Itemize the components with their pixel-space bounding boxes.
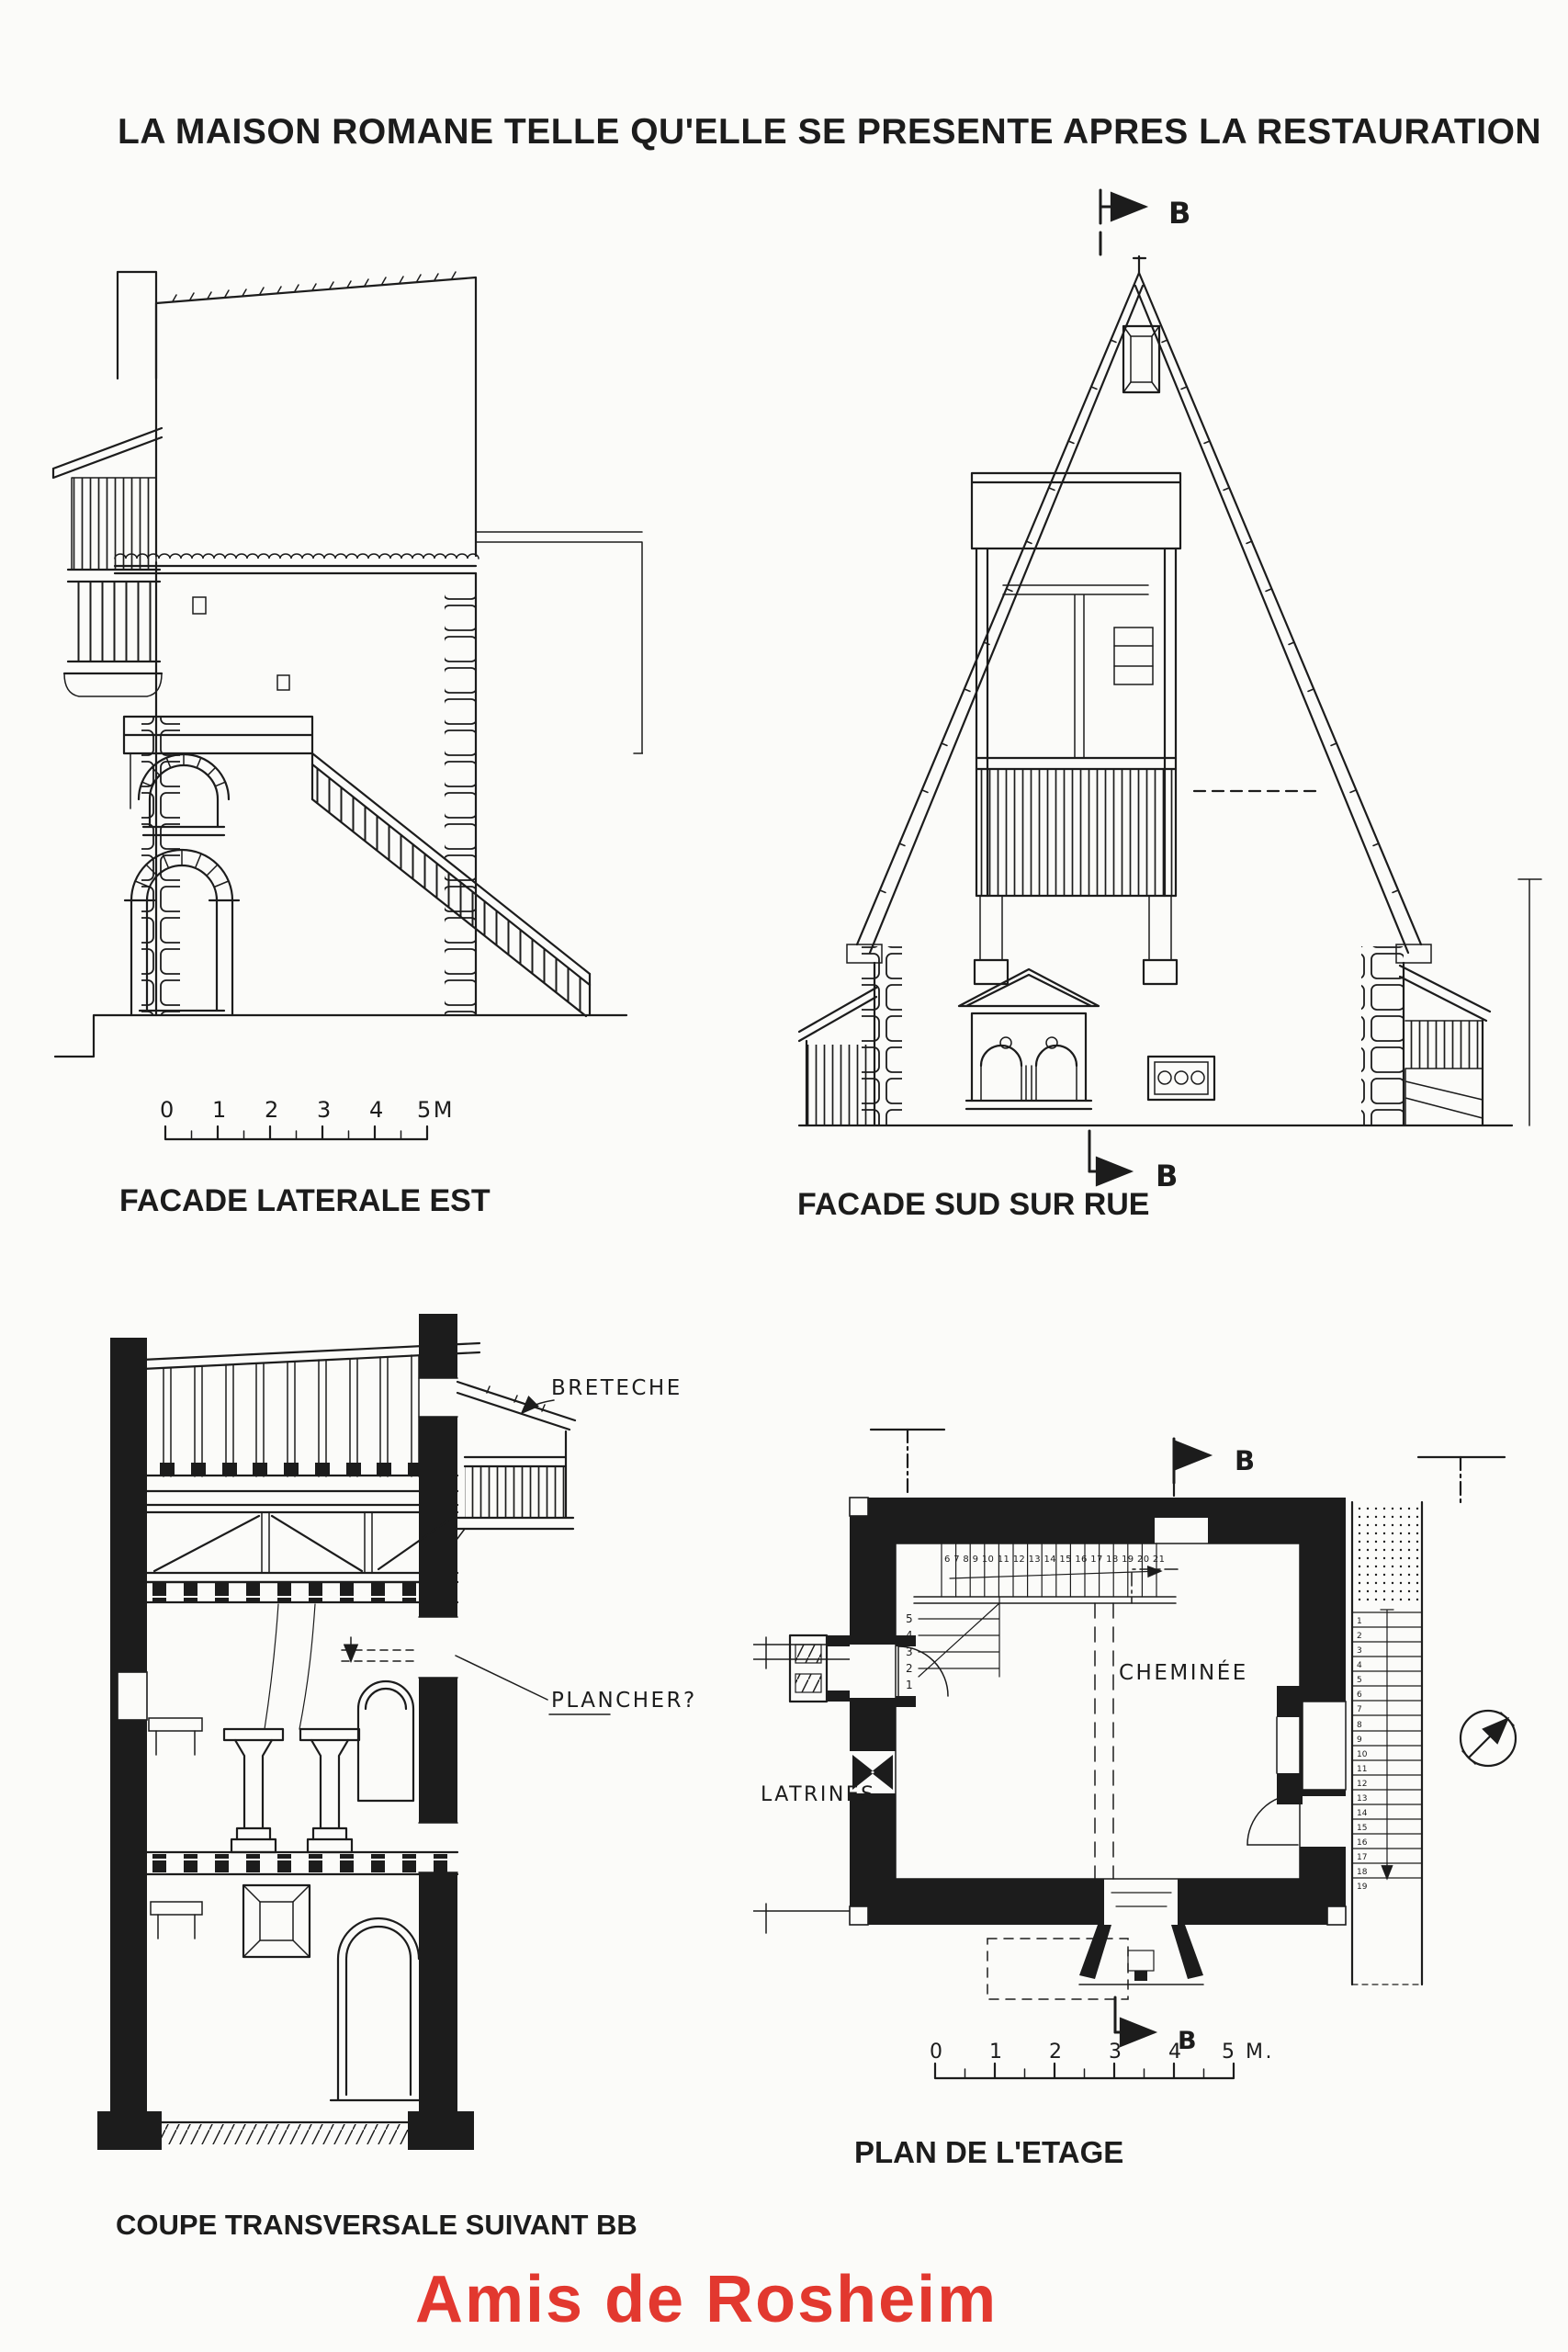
- stair-number: 10: [1357, 1750, 1368, 1759]
- stone-quoins-right: [445, 581, 476, 1015]
- stair-number: 17: [1357, 1853, 1367, 1862]
- attic-studs: [147, 1355, 457, 1491]
- cheminee-label: CHEMINÉE: [1119, 1659, 1248, 1685]
- scale-tick: 4: [1168, 2041, 1184, 2064]
- scale-bar-plan: 0 1 2 3 4 5 M.: [930, 2041, 1274, 2078]
- arched-niche-right: [358, 1681, 413, 1801]
- plancher-annotation: PLANCHER?: [342, 1637, 697, 1714]
- scale-tick: 5 M.: [1222, 2041, 1274, 2064]
- stair-number: 5: [1357, 1676, 1362, 1685]
- tile-frieze: [115, 554, 479, 573]
- stair-number: 8: [1357, 1721, 1362, 1730]
- small-window-mid: [277, 675, 289, 690]
- north-indicator: [1461, 1711, 1516, 1766]
- stair-number: 18: [1357, 1868, 1368, 1877]
- stair-number: 13: [1357, 1794, 1367, 1804]
- gable-vent: [1123, 326, 1159, 392]
- stair-number: 1: [1357, 1617, 1362, 1626]
- section-label-b-bottom: B: [1156, 1159, 1178, 1193]
- stair-number: 14: [1357, 1809, 1368, 1818]
- chimney: [118, 272, 156, 379]
- triple-light-opening: [1148, 1057, 1214, 1100]
- stair-number: 5: [906, 1612, 913, 1625]
- facade-sud-drawing: B: [762, 170, 1552, 1199]
- scale-bar-est: 0 1 2 3 4 5M: [160, 1097, 455, 1139]
- stair-number: 4: [1357, 1661, 1362, 1670]
- coupe-drawing: PLANCHER?: [55, 1314, 735, 2196]
- scale-tick: 3: [1109, 2041, 1124, 2064]
- breteche-label: BRETECHE: [551, 1376, 682, 1400]
- caption-facade-sud: FACADE SUD SUR RUE: [797, 1187, 1149, 1223]
- breteche-oriel: [53, 428, 162, 696]
- section-marker-bottom: B: [1089, 1131, 1178, 1193]
- plan-drawing: 6 7 8 9 10 11 12 13 14 15 16 17 18 19 20…: [753, 1415, 1543, 2113]
- side-gallery: [1400, 966, 1490, 1125]
- exterior-stair: 1 2 3 4 5 6 7 8 9 10 11 12 13 14 15 16 1…: [1352, 1502, 1422, 1984]
- scale-tick: 3: [317, 1097, 333, 1123]
- caption-facade-est: FACADE LATERALE EST: [119, 1183, 491, 1219]
- section-label-b-top: B: [1235, 1445, 1255, 1476]
- stair-number: 9: [1357, 1736, 1362, 1745]
- loggia: [972, 473, 1180, 984]
- ground-hatch: [142, 2122, 473, 2144]
- breteche-structure: [441, 1382, 575, 1560]
- scale-tick: 1: [212, 1097, 229, 1123]
- cut-wall-left: [97, 1338, 162, 2150]
- timber-frame-band: [147, 1505, 457, 1582]
- roof-slab: [156, 272, 476, 556]
- boundary-mark-right: [1518, 879, 1541, 1125]
- section-marker-top: B: [1174, 1439, 1255, 1498]
- stair-number: 12: [1357, 1780, 1367, 1789]
- stair-number: 11: [1357, 1765, 1367, 1774]
- scale-tick: 4: [369, 1097, 386, 1123]
- stair-tread-numbers-top: 6 7 8 9 10 11 12 13 14 15 16 17 18 19 20…: [944, 1555, 1165, 1565]
- scale-tick: 0: [930, 2041, 945, 2064]
- section-marker-top: B: [1100, 190, 1190, 254]
- stair-number: 19: [1357, 1883, 1368, 1892]
- stair-number: 7: [1357, 1705, 1362, 1714]
- caption-plan: PLAN DE L'ETAGE: [854, 2135, 1123, 2170]
- neighbor-wall-line: [476, 532, 643, 753]
- credit-stamp: Amis de Rosheim: [415, 2262, 998, 2337]
- scale-tick: 2: [1049, 2041, 1065, 2064]
- page-title: LA MAISON ROMANE TELLE QU'ELLE SE PRESEN…: [118, 112, 1541, 153]
- facade-est-drawing: 0 1 2 3 4 5M: [37, 165, 643, 1176]
- cut-wall-right: [408, 1314, 474, 2150]
- latrines-label: LATRINES: [761, 1783, 876, 1806]
- stair-number: 6: [1357, 1690, 1362, 1700]
- fireplace: CHEMINÉE: [1119, 1659, 1303, 1804]
- scale-tick: 0: [160, 1097, 176, 1123]
- joist-row-lower: [147, 1852, 457, 1874]
- joist-row-upper: [147, 1582, 457, 1602]
- stair-number: 3: [1357, 1646, 1362, 1656]
- door-left: [896, 1635, 948, 1707]
- scale-tick: 2: [265, 1097, 281, 1123]
- ground-arch-door: [331, 1918, 423, 2100]
- stair-number: 16: [1357, 1838, 1368, 1848]
- stone-quoins-right: [1361, 946, 1404, 1125]
- section-label-b-top: B: [1168, 196, 1190, 231]
- breteche-annotation: BRETECHE: [522, 1376, 682, 1413]
- small-window-upper: [193, 597, 206, 614]
- section-line-dashes: [987, 1569, 1178, 1999]
- splayed-window: [243, 1885, 310, 1957]
- twin-arch-window: [959, 969, 1099, 1109]
- stair-number: 15: [1357, 1824, 1367, 1833]
- caption-coupe: COUPE TRANSVERSALE SUIVANT BB: [116, 2209, 637, 2242]
- plancher-label: PLANCHER?: [551, 1689, 697, 1713]
- stair-number: 2: [1357, 1632, 1362, 1641]
- column-left: [224, 1729, 283, 1852]
- ground-floor-bench: [151, 1902, 202, 1939]
- stair-number: 1: [906, 1679, 913, 1691]
- scanned-drawing-sheet: LA MAISON ROMANE TELLE QU'ELLE SE PRESEN…: [0, 0, 1568, 2352]
- section-marker-bottom: B: [1115, 1997, 1197, 2055]
- stair-number: 2: [906, 1662, 913, 1675]
- hall-curtain-lines: [265, 1604, 315, 1729]
- scale-tick: 1: [989, 2041, 1005, 2064]
- column-right: [300, 1729, 359, 1852]
- scale-tick: 5M: [417, 1097, 455, 1123]
